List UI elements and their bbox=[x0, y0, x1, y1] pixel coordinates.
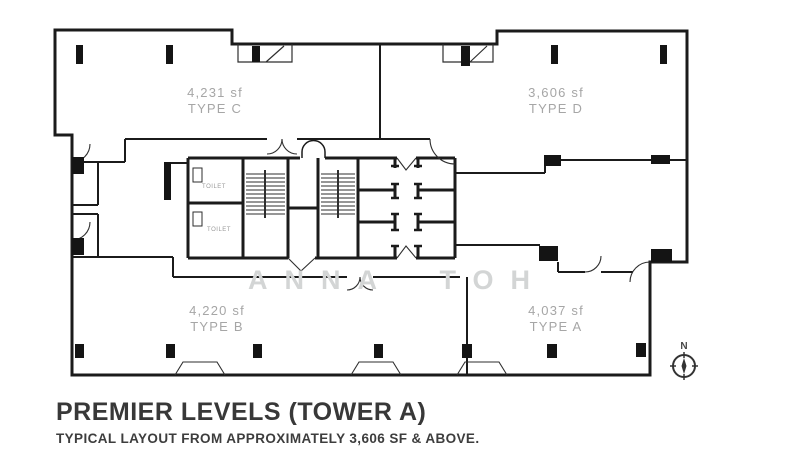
plan-subtitle: TYPICAL LAYOUT FROM APPROXIMATELY 3,606 … bbox=[56, 431, 479, 446]
elevator-jambs bbox=[391, 166, 422, 246]
watermark-text: ANNA TOH bbox=[248, 265, 547, 295]
floor-plan-page: ANNA TOH 4,231 sf TYPE C 3,606 sf TYPE D… bbox=[0, 0, 800, 465]
north-label: N bbox=[680, 341, 687, 352]
unit-a-area-label: 4,037 sf bbox=[528, 303, 584, 318]
toilet-label-upper: TOILET bbox=[202, 184, 226, 190]
plan-caption: PREMIER LEVELS (TOWER A) TYPICAL LAYOUT … bbox=[56, 398, 479, 446]
unit-b-type-label: TYPE B bbox=[190, 319, 243, 334]
compass-needle bbox=[682, 358, 687, 374]
interior-walls bbox=[72, 44, 687, 375]
toilet-label-lower: TOILET bbox=[207, 227, 231, 233]
unit-c-area-label: 4,231 sf bbox=[187, 85, 243, 100]
plan-title: PREMIER LEVELS (TOWER A) bbox=[56, 398, 479, 427]
stair-1 bbox=[246, 170, 285, 218]
stair-2 bbox=[321, 170, 355, 218]
north-compass: N bbox=[670, 341, 698, 380]
unit-b-area-label: 4,220 sf bbox=[189, 303, 245, 318]
floor-plan-drawing: ANNA TOH 4,231 sf TYPE C 3,606 sf TYPE D… bbox=[0, 0, 800, 465]
entry-vestibules bbox=[238, 44, 493, 62]
unit-a-type-label: TYPE A bbox=[530, 319, 583, 334]
building-outline bbox=[55, 30, 687, 375]
toilet-fixtures bbox=[193, 168, 202, 226]
window-bays bbox=[175, 362, 507, 375]
unit-d-type-label: TYPE D bbox=[529, 101, 583, 116]
unit-c-type-label: TYPE C bbox=[188, 101, 242, 116]
unit-d-area-label: 3,606 sf bbox=[528, 85, 584, 100]
core-walls bbox=[188, 141, 455, 259]
